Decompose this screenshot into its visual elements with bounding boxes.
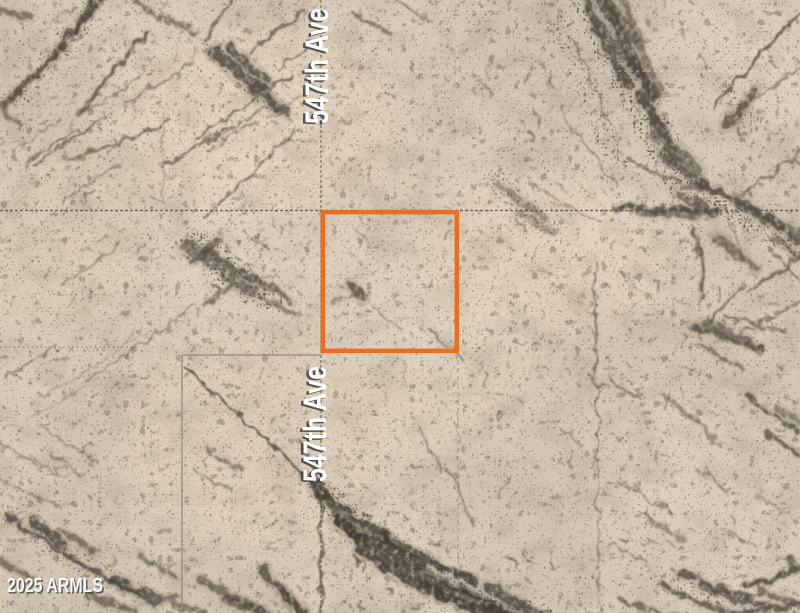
svg-text:547th Ave: 547th Ave [297, 366, 333, 482]
svg-text:2025 ARMLS: 2025 ARMLS [7, 574, 103, 597]
svg-text:547th Ave: 547th Ave [299, 8, 335, 124]
